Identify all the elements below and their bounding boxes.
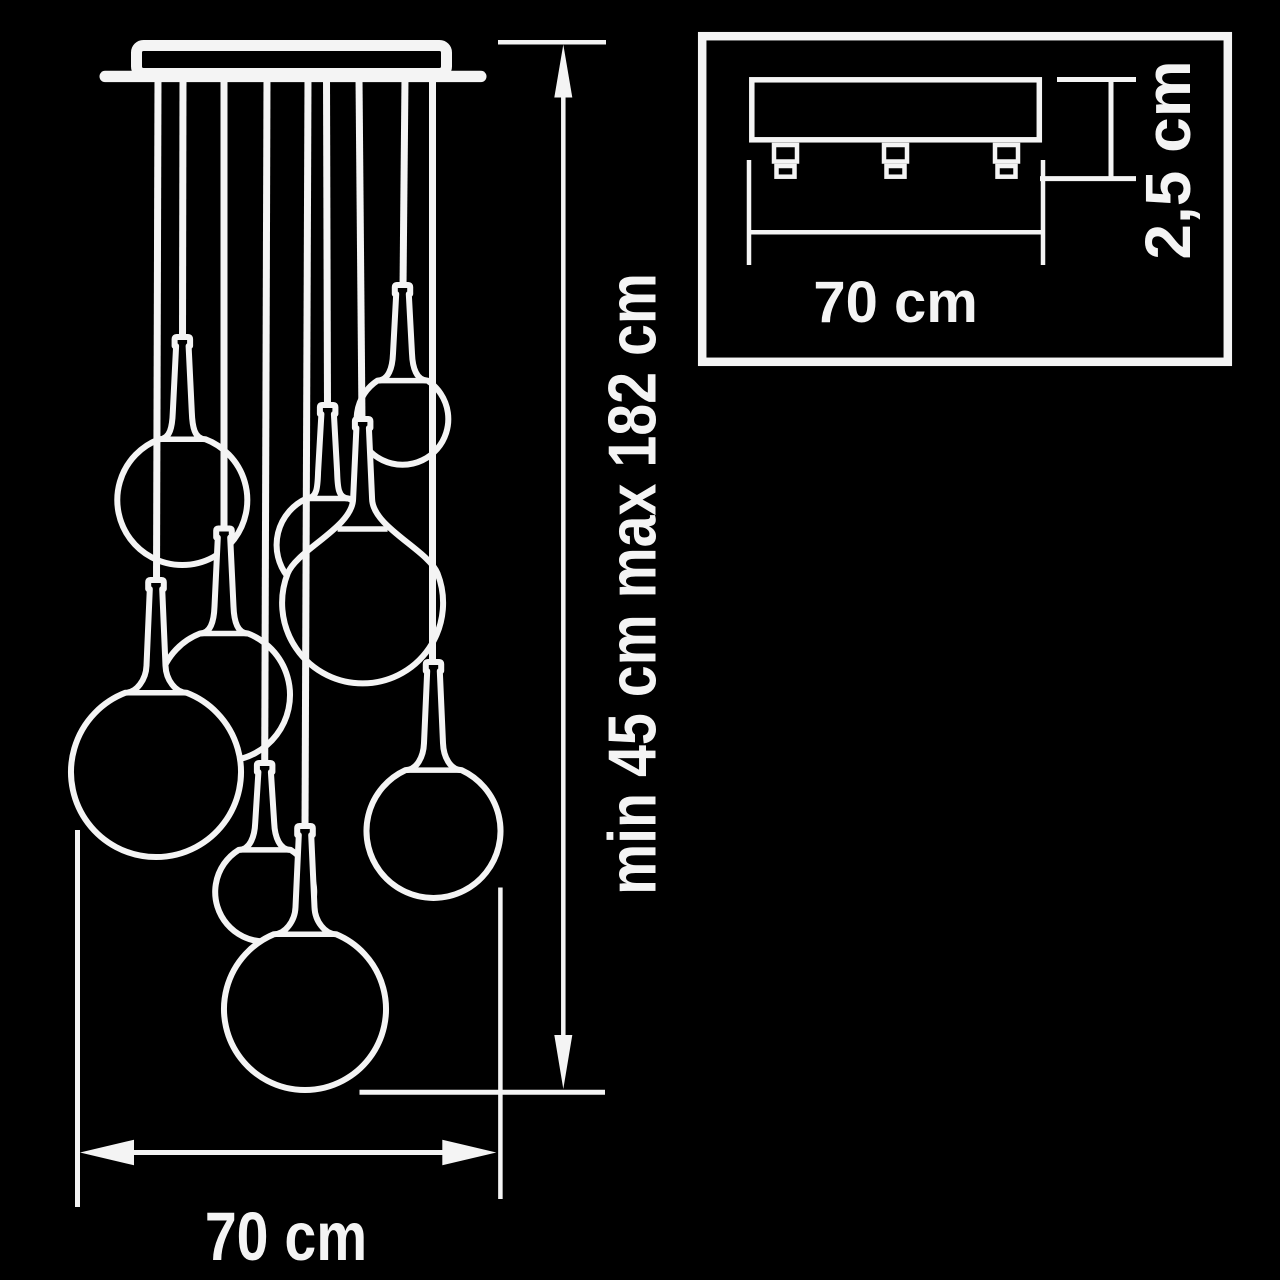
svg-text:70 cm: 70 cm	[205, 1199, 367, 1275]
svg-text:2,5 cm: 2,5 cm	[1132, 60, 1204, 259]
svg-text:70 cm: 70 cm	[813, 270, 977, 335]
svg-text:min 45 cm max 182 cm: min 45 cm max 182 cm	[595, 273, 670, 895]
